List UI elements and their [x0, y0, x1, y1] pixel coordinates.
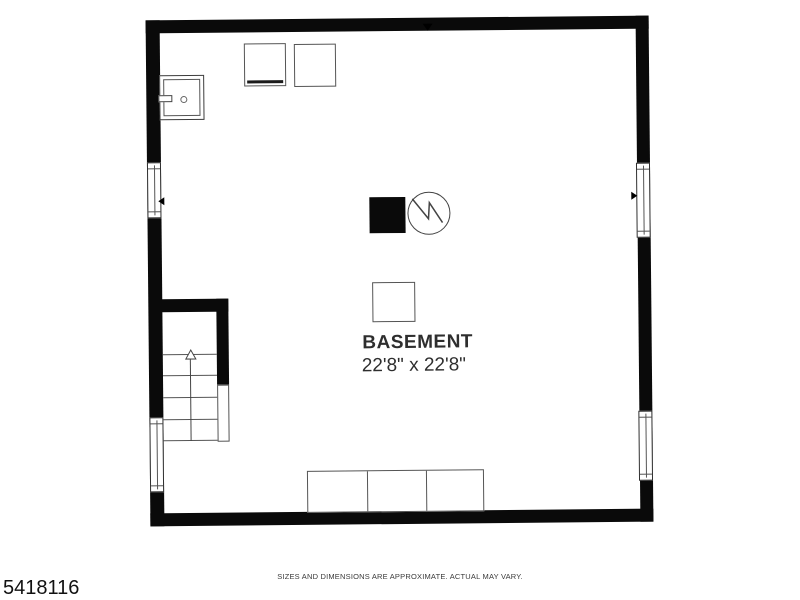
sink-drain-icon: [180, 96, 187, 103]
lightning-zigzag-icon: [408, 193, 448, 233]
marker-icon: [158, 197, 164, 205]
wall-top: [146, 16, 649, 34]
marker-icon: [631, 192, 637, 200]
listing-id: 5418116: [3, 579, 79, 597]
room-name-label: BASEMENT: [318, 331, 518, 355]
floorplan-image: BASEMENT 22'8" x 22'8" SIZES AND DIMENSI…: [0, 0, 800, 600]
up-arrow-icon: [185, 349, 197, 360]
storage-shelves-icon: [307, 469, 484, 513]
window-right-lower: [638, 411, 653, 481]
room-dimensions-label: 22'8" x 22'8": [314, 354, 514, 378]
basement-floorplan: BASEMENT 22'8" x 22'8": [146, 16, 654, 527]
utility-sink-icon: [159, 75, 204, 120]
shelf-divider: [426, 471, 427, 511]
window-left-lower: [149, 417, 164, 492]
sink-faucet-icon: [158, 95, 172, 102]
washer-door-line: [247, 80, 283, 83]
disclaimer-text: SIZES AND DIMENSIONS ARE APPROXIMATE. AC…: [0, 572, 800, 581]
washer-icon: [244, 43, 286, 86]
marker-icon: [423, 24, 433, 31]
shelf-divider: [367, 471, 368, 511]
window-mullion: [153, 165, 154, 215]
stair-direction-line: [190, 359, 192, 441]
window-left-upper: [147, 162, 162, 218]
dryer-icon: [294, 44, 336, 87]
furnace-icon: [369, 197, 405, 233]
window-right-upper: [636, 163, 651, 238]
sump-pit-icon: [372, 282, 415, 322]
window-mullion: [645, 414, 647, 478]
stair-wall-right: [216, 299, 229, 385]
water-heater-icon: [407, 192, 450, 235]
window-mullion: [156, 420, 158, 489]
window-mullion: [643, 166, 645, 235]
stair-railing: [217, 385, 230, 442]
